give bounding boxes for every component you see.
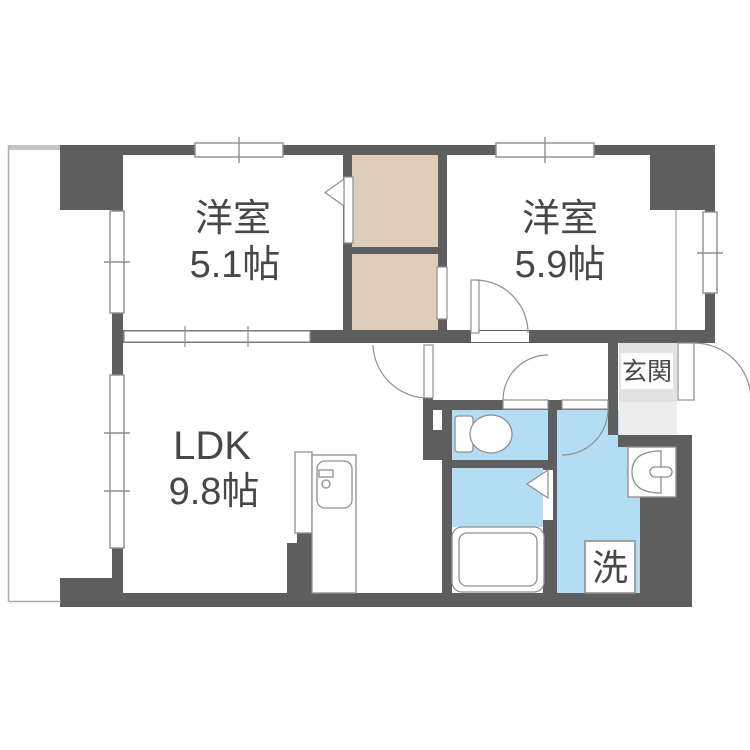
floor-plan-canvas: 洋室 5.1帖 洋室 5.9帖 LDK 9.8帖 玄関 洗 [0, 0, 750, 750]
bedroom2-door-arc [475, 280, 528, 333]
window-left-ldk [110, 375, 124, 548]
washroom-door-leaf [562, 400, 608, 409]
bedroom1-name-label: 洋室 [195, 198, 271, 240]
kitchen-faucet-knob [322, 480, 330, 488]
toilet-door-leaf [503, 400, 548, 409]
wall-bath-left [442, 468, 452, 595]
closet-floors [352, 155, 438, 333]
sliding-door-bedroom1-ldk [124, 326, 310, 347]
ldk-hall-door-arc [373, 345, 428, 398]
wall-toilet-bath-divider [442, 460, 557, 468]
bedroom1-size-label: 5.1帖 [190, 244, 281, 286]
entrance-door-arc [694, 343, 750, 400]
entrance-label: 玄関 [622, 358, 672, 386]
wall-bottom-left-block [60, 578, 123, 607]
sliding-door-panel [124, 331, 310, 342]
kitchen-counter-side [295, 452, 312, 533]
bedroom2-door-gap [471, 331, 529, 342]
bedroom2-name-label: 洋室 [522, 198, 598, 240]
wall-closet-divider [343, 247, 447, 254]
wall-kitchen-stub-small [297, 533, 312, 543]
balcony-top-band [8, 145, 60, 150]
wall-kitchen-stub [287, 543, 313, 593]
ldk-hall-door-leaf [424, 345, 433, 398]
vanity-faucet [650, 467, 672, 477]
closet-lower-floor [352, 254, 438, 333]
bathroom-floor [452, 468, 543, 527]
toilet-bowl [470, 415, 512, 453]
entrance-door-leaf [678, 343, 694, 400]
bathtub-outer [452, 527, 544, 592]
wall-bottom [112, 593, 692, 607]
wall-toilet-right [548, 400, 557, 468]
bedroom2-door-leaf [471, 280, 479, 333]
wall-right-of-sink [675, 447, 692, 497]
laundry-label: 洗 [592, 547, 628, 588]
balcony [8, 145, 61, 602]
ldk-name-label: LDK [173, 424, 251, 468]
wall-lower-right-mass [640, 497, 692, 595]
floor-plan: 洋室 5.1帖 洋室 5.9帖 LDK 9.8帖 玄関 洗 [0, 0, 750, 750]
wall-entrance-left [608, 343, 618, 435]
closet-upper-door-leaf [344, 177, 353, 243]
closet-upper-door-icon [325, 179, 344, 206]
closet-upper-floor [352, 155, 438, 247]
entrance-step [619, 402, 677, 435]
kitchen-faucet [319, 470, 333, 477]
bedroom2-size-label: 5.9帖 [515, 244, 606, 286]
wall-toilet-left [442, 410, 452, 460]
toilet-door-arc [503, 355, 548, 400]
ldk-size-label: 9.8帖 [169, 471, 260, 513]
wall-under-entrance [618, 435, 692, 447]
closet-lower-door-leaf [437, 267, 447, 319]
